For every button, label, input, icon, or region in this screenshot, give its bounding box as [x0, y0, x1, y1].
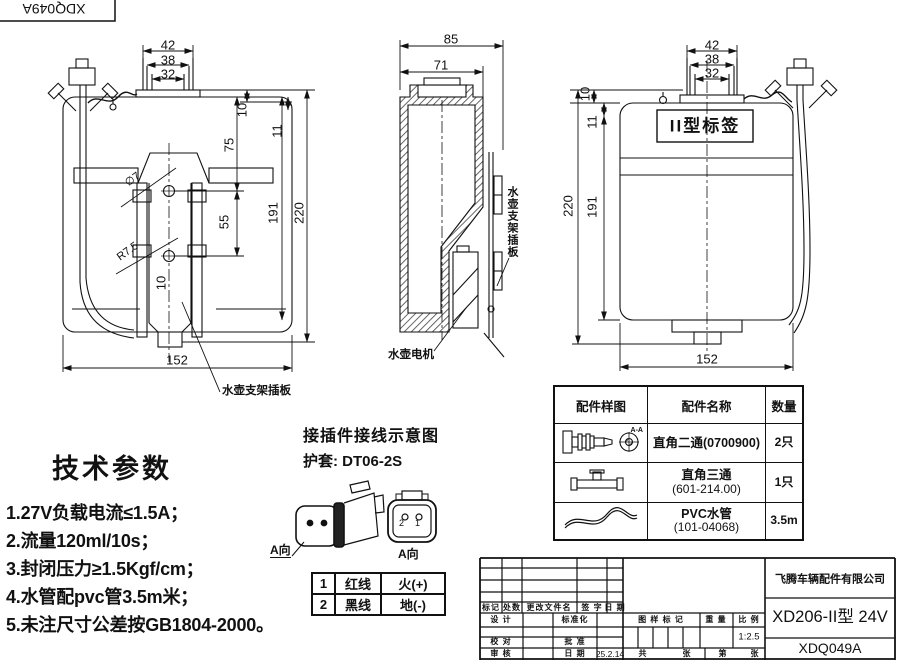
- tb-revision-mark: 标记: [482, 604, 500, 612]
- engineering-drawing-sheet: { "doc_box": { "number": "XDQ049A" }, "f…: [0, 0, 900, 660]
- pvc-tube-icon: [557, 505, 645, 533]
- tech-param-item: 5.未注尺寸公差按GB1804-2000。: [6, 616, 274, 634]
- tb-revision-sign: 签 字: [581, 604, 602, 612]
- parts-table: 配件样图 配件名称 数量 A-A 直角二通(0700900): [553, 385, 804, 541]
- part-code: (101-04068): [648, 521, 765, 535]
- rear-tag-label: II型标签: [670, 118, 740, 135]
- table-row: A-A 直角二通(0700900) 2只: [554, 424, 803, 463]
- wire-color-cell: 红线: [335, 573, 381, 594]
- front-dim-75: 75: [223, 138, 236, 152]
- rear-dim-11: 11: [586, 115, 599, 129]
- side-motor-label: 水壶电机: [388, 350, 434, 362]
- connector-left-drawing: [292, 481, 384, 556]
- tb-revision-file: 更改文件名: [527, 604, 572, 612]
- wire-function-cell: 地(-): [381, 594, 445, 615]
- front-dim-55: 55: [218, 215, 231, 229]
- part-qty: 3.5m: [766, 503, 804, 540]
- parts-icon-cell: A-A: [554, 424, 648, 463]
- connector-title: 接插件接线示意图: [303, 429, 439, 445]
- tb-revision-count: 处数: [503, 604, 521, 612]
- tb-scale-value: 1:2.5: [738, 632, 759, 642]
- front-dim-191: 191: [267, 202, 280, 224]
- front-dim-220: 220: [293, 202, 306, 224]
- connector-sheath-label: 护套: DT06-2S: [303, 454, 402, 469]
- parts-icon-cell: [554, 503, 648, 540]
- side-plate-label: 水壶支架插板: [506, 186, 517, 258]
- rear-dim-220: 220: [562, 195, 575, 217]
- rear-dim-42: 42: [705, 39, 719, 52]
- wire-table: 1 红线 火(+) 2 黑线 地(-): [311, 572, 446, 616]
- part-name: PVC水管: [648, 507, 765, 521]
- front-dim-38: 38: [161, 54, 175, 67]
- table-row: PVC水管(101-04068) 3.5m: [554, 503, 803, 540]
- part-qty: 2只: [766, 424, 804, 463]
- rear-dim-191: 191: [586, 196, 599, 218]
- wire-color-cell: 黑线: [335, 594, 381, 615]
- tech-param-item: 4.水管配pvc管3.5m米；: [6, 588, 198, 606]
- side-view-drawing: [400, 40, 509, 357]
- rear-dim-152: 152: [696, 353, 718, 366]
- wire-function-cell: 火(+): [381, 573, 445, 594]
- tech-param-item: 3.封闭压力≥1.5Kgf/cm；: [6, 560, 204, 578]
- rear-dim-38: 38: [705, 53, 719, 66]
- part-code: (601-214.00): [648, 483, 765, 497]
- part-name: 直角三通: [648, 468, 765, 482]
- parts-header-qty: 数量: [766, 386, 804, 424]
- parts-header-image: 配件样图: [554, 386, 648, 424]
- tb-date-label: 日 期: [564, 650, 585, 658]
- section-aa-label: A-A: [631, 427, 643, 434]
- tb-company-name: 飞腾车辆配件有限公司: [775, 575, 885, 586]
- tb-drawing-number: XDQ049A: [798, 641, 861, 655]
- tb-weight-label: 重 量: [705, 616, 726, 624]
- table-row: 直角三通(601-214.00) 1只: [554, 463, 803, 503]
- wire-pin-cell: 2: [312, 594, 335, 615]
- tb-scale-label: 比 例: [738, 616, 759, 624]
- tb-sheet-label: 张: [683, 650, 692, 658]
- front-dim-11: 11: [271, 124, 284, 138]
- wire-pin-cell: 1: [312, 573, 335, 594]
- parts-icon-cell: [554, 463, 648, 503]
- tb-check-label: 校 对: [490, 638, 511, 646]
- tb-total-label: 共: [639, 650, 648, 658]
- tech-param-item: 2.流量120ml/10s；: [6, 532, 158, 550]
- side-dim-85: 85: [444, 33, 458, 46]
- front-dim-152: 152: [166, 354, 188, 367]
- rear-dim-10: 10: [579, 87, 592, 101]
- connector-view-label-left: A向: [270, 544, 291, 558]
- connector-pin1-label: 1: [415, 519, 420, 528]
- front-dim-10: 10: [236, 103, 249, 117]
- connector-right-drawing: [388, 491, 436, 542]
- tb-audit-label: 审 核: [490, 650, 511, 658]
- front-dim-42: 42: [161, 39, 175, 52]
- tech-params-title: 技术参数: [52, 456, 172, 483]
- tb-stamp-label: 图 样 标 记: [638, 616, 684, 624]
- tee-fitting-icon: [557, 468, 645, 494]
- tb-design-label: 设 计: [490, 616, 511, 624]
- tb-page-label: 第: [719, 650, 728, 658]
- connector-pin2-label: 2: [399, 519, 404, 528]
- doc-number-rotated: XDQ049A: [22, 2, 85, 16]
- tb-date-value: 25.2.14: [596, 650, 624, 659]
- rear-view-drawing: [570, 45, 837, 371]
- rear-dim-32: 32: [705, 67, 719, 80]
- table-row: 2 黑线 地(-): [312, 594, 445, 615]
- tb-revision-date: 日 期: [604, 604, 625, 612]
- tb-approve-label: 批 准: [564, 638, 585, 646]
- parts-header-name: 配件名称: [648, 386, 766, 424]
- part-name: 直角二通(0700900): [648, 436, 765, 450]
- tb-sheet-label2: 张: [751, 650, 760, 658]
- table-row: 1 红线 火(+): [312, 573, 445, 594]
- tech-param-item: 1.27V负载电流≤1.5A；: [6, 504, 188, 522]
- side-dim-71: 71: [434, 59, 448, 72]
- tb-model-number: XD206-II型 24V: [772, 609, 888, 626]
- table-header-row: 配件样图 配件名称 数量: [554, 386, 803, 424]
- connector-view-label-right: A向: [398, 548, 419, 560]
- front-dim-32: 32: [161, 68, 175, 81]
- front-bracket-label: 水壶支架插板: [222, 386, 291, 398]
- part-qty: 1只: [766, 463, 804, 503]
- front-dim-10-inner: 10: [155, 276, 168, 290]
- tb-standardization-label: 标准化: [562, 616, 589, 624]
